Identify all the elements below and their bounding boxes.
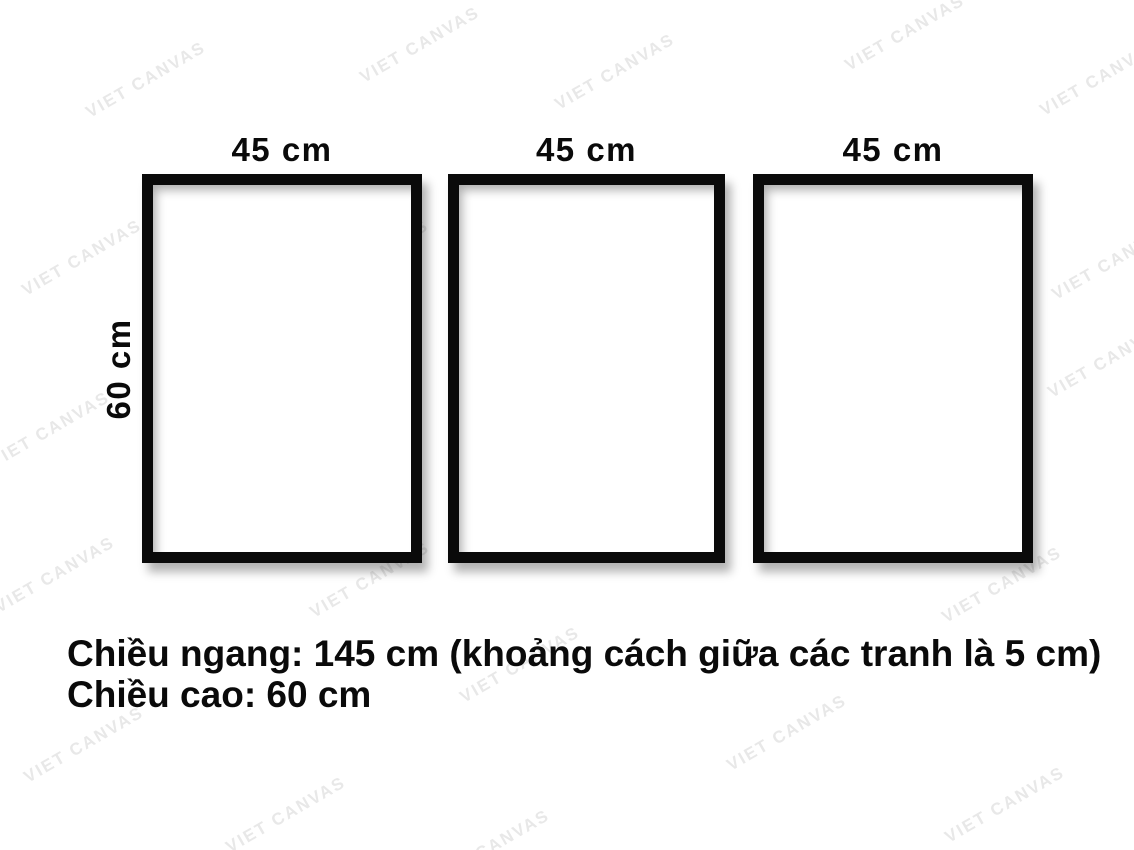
watermark-text: VIET CANVAS [0,533,118,618]
height-label: 60 cm [100,318,138,419]
caption-line-vertical: Chiều cao: 60 cm [67,674,1101,715]
frame-3-width-label: 45 cm [753,130,1033,170]
caption-line-horizontal: Chiều ngang: 145 cm (khoảng cách giữa cá… [67,633,1101,674]
watermark-text: VIET CANVAS [842,0,969,75]
dimension-diagram: VIET CANVASVIET CANVASVIET CANVASVIET CA… [0,0,1134,850]
watermark-text: VIET CANVAS [552,30,679,115]
watermark-text: VIET CANVAS [223,773,350,850]
watermark-text: VIET CANVAS [1037,36,1134,121]
watermark-text: VIET CANVAS [1045,318,1134,403]
watermark-text: VIET CANVAS [1049,220,1134,305]
watermark-text: VIET CANVAS [21,703,148,788]
frame-1-width-label: 45 cm [142,130,422,170]
watermark-text: VIET CANVAS [942,763,1069,848]
frame-2 [448,174,725,563]
watermark-text: VIET CANVAS [357,3,484,88]
frame-3 [753,174,1033,563]
frame-1 [142,174,422,563]
watermark-text: VIET CANVAS [19,216,146,301]
watermark-text: VIET CANVAS [0,388,113,473]
caption: Chiều ngang: 145 cm (khoảng cách giữa cá… [67,633,1101,715]
frame-2-width-label: 45 cm [448,130,725,170]
watermark-text: VIET CANVAS [83,38,210,123]
watermark-text: VIET CANVAS [427,806,554,850]
